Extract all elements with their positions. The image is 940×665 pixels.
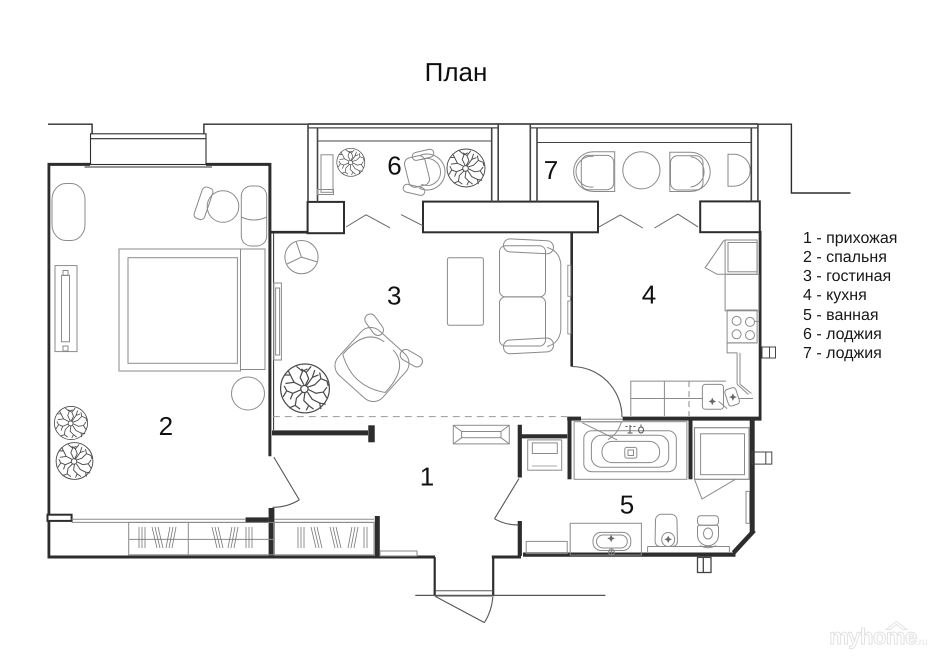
svg-text:7: 7 xyxy=(544,155,558,185)
svg-text:2: 2 xyxy=(159,411,173,441)
svg-text:3 - гостиная: 3 - гостиная xyxy=(803,268,891,285)
svg-text:6: 6 xyxy=(387,151,401,181)
svg-text:План: План xyxy=(425,57,488,87)
svg-text:3: 3 xyxy=(387,280,401,310)
svg-text:1 - прихожая: 1 - прихожая xyxy=(803,230,897,247)
svg-text:.ru: .ru xyxy=(916,637,928,648)
svg-text:1: 1 xyxy=(420,461,434,491)
svg-text:4: 4 xyxy=(642,279,656,309)
svg-text:2 - спальня: 2 - спальня xyxy=(803,249,887,266)
svg-text:myhome: myhome xyxy=(829,624,917,649)
svg-text:4 - кухня: 4 - кухня xyxy=(803,287,867,304)
svg-text:7 - лоджия: 7 - лоджия xyxy=(803,345,882,362)
svg-text:5 - ванная: 5 - ванная xyxy=(803,307,879,324)
svg-text:5: 5 xyxy=(620,489,634,519)
svg-text:6 - лоджия: 6 - лоджия xyxy=(803,326,882,343)
